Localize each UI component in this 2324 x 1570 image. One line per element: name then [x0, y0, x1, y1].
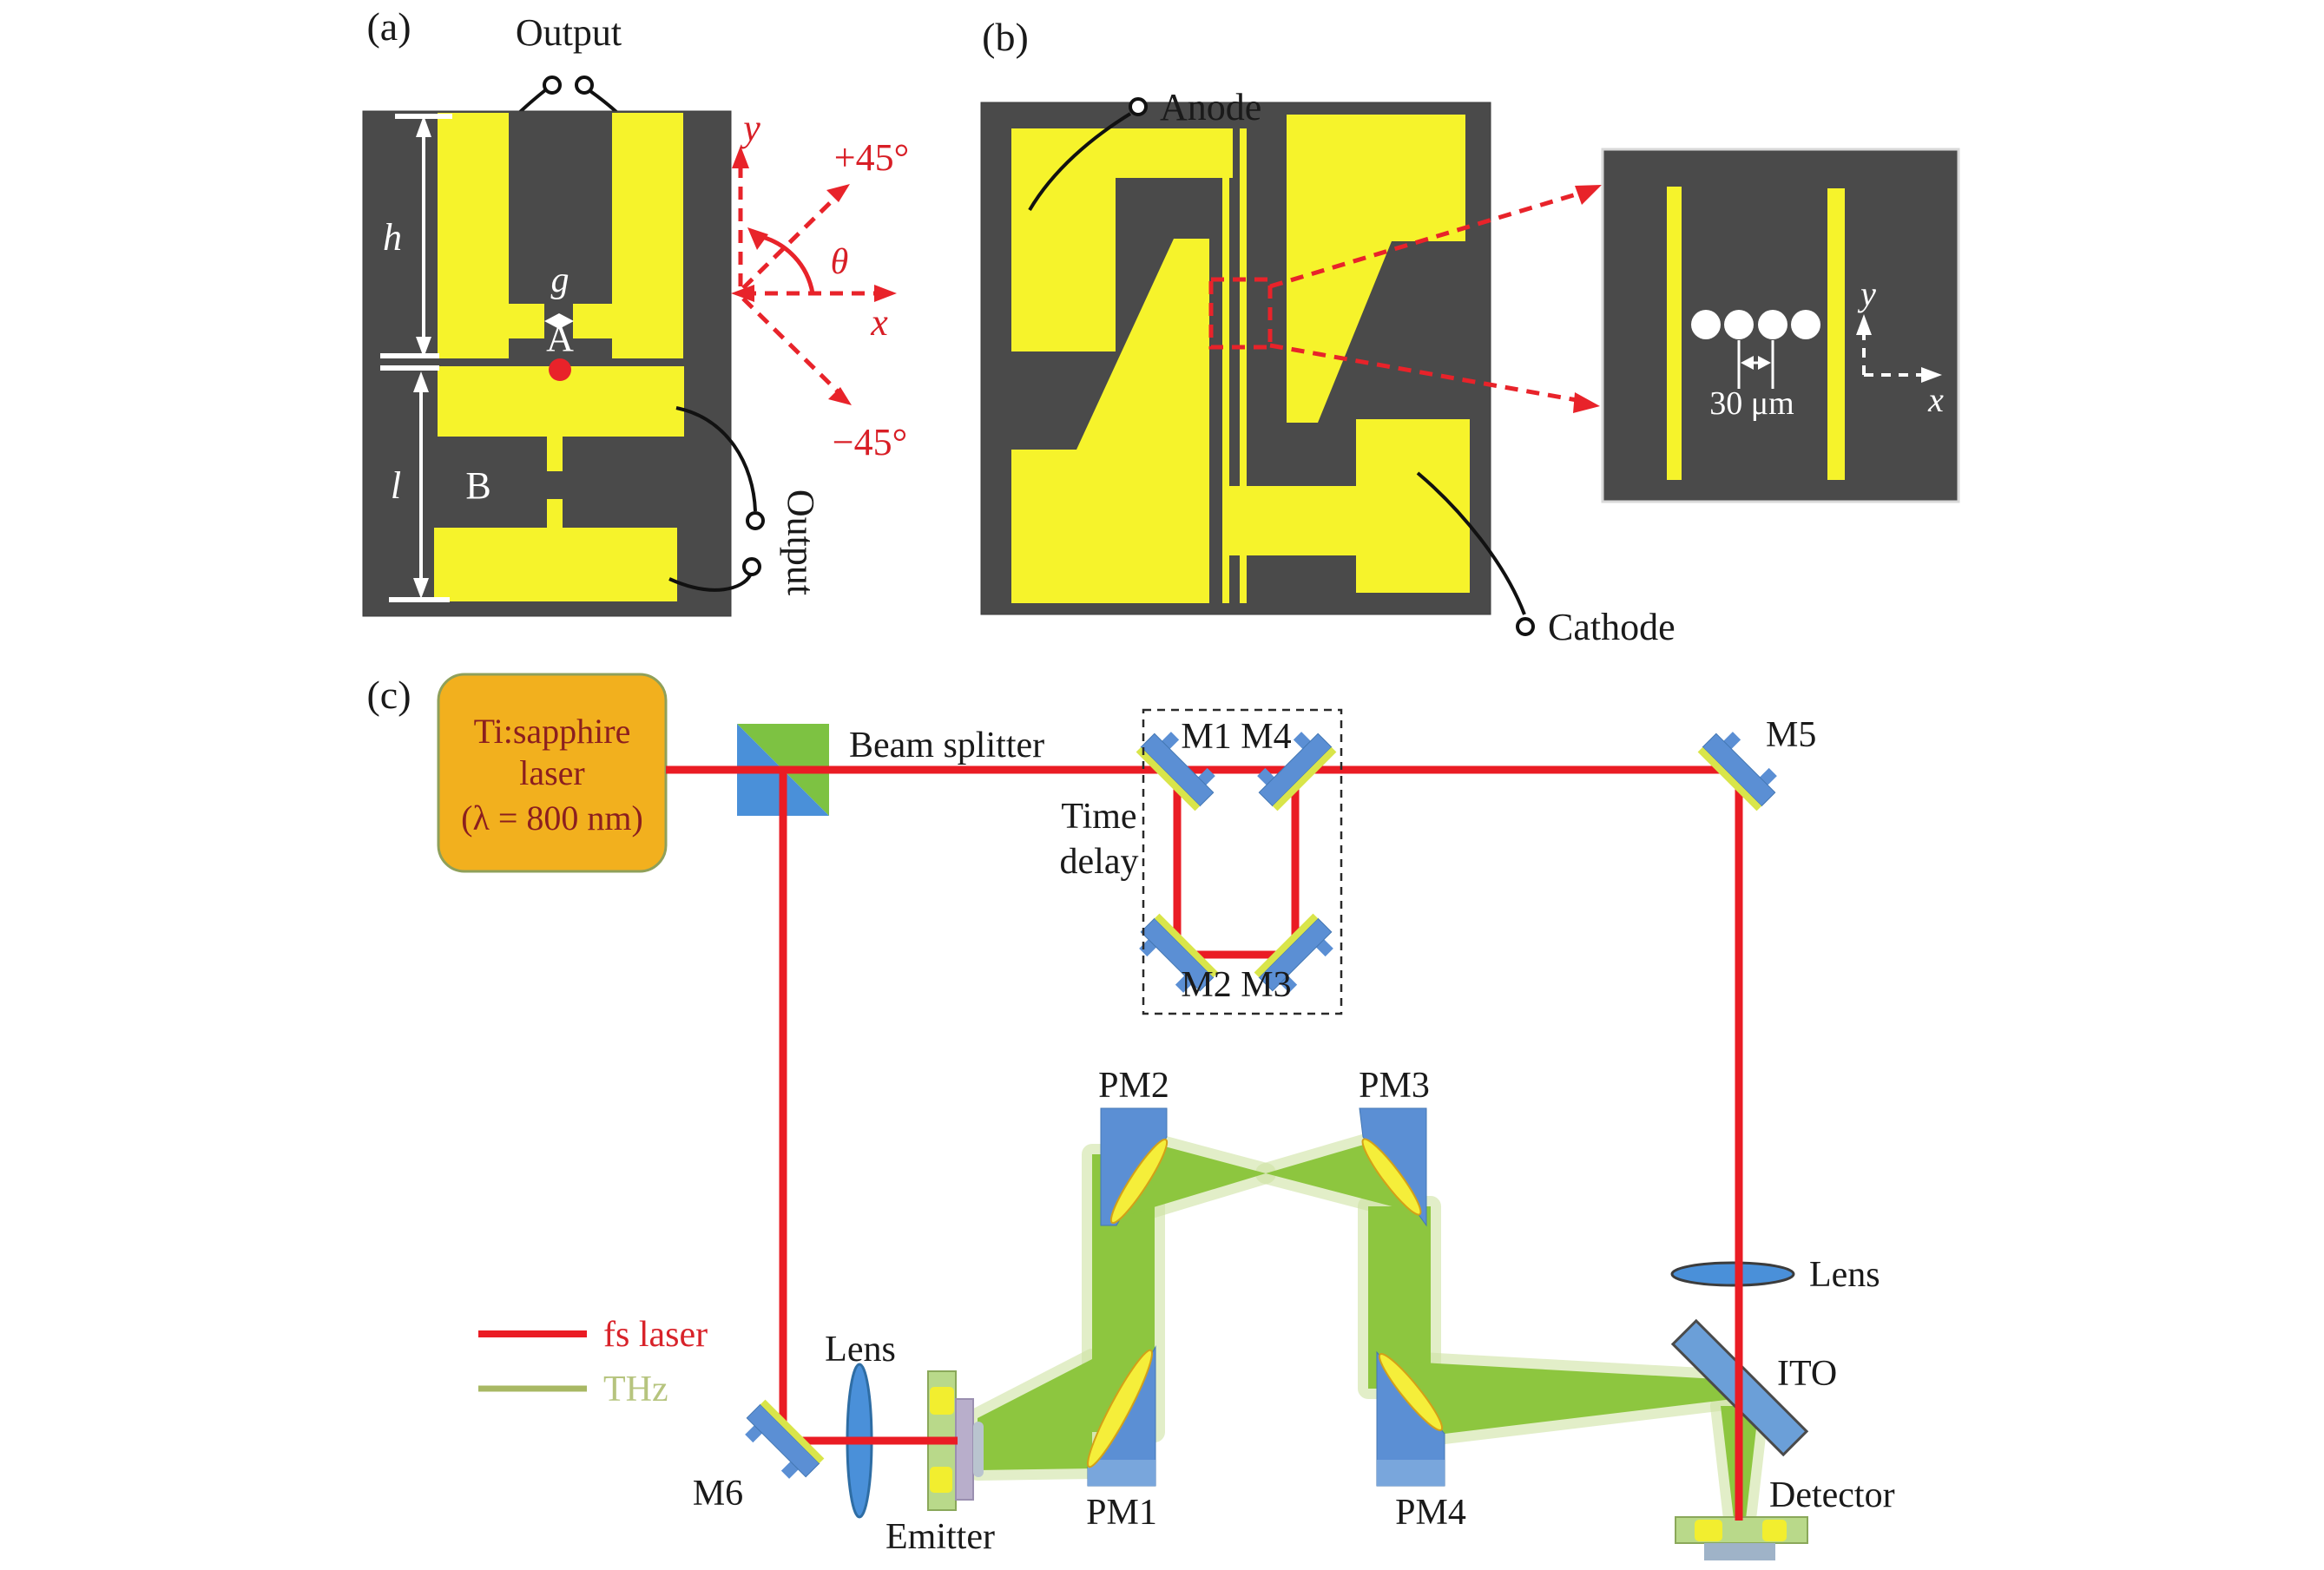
emitter-substrate-plate	[956, 1399, 973, 1500]
label-h: h	[383, 216, 402, 259]
inset-electrode-right	[1827, 188, 1845, 480]
polar-axes: y x +45° −45° θ	[731, 107, 909, 463]
emitter-label: Emitter	[885, 1517, 995, 1557]
pm4-label: PM4	[1395, 1493, 1466, 1533]
anode-bottom-pad	[1011, 450, 1209, 603]
axis-minus45-label: −45°	[833, 421, 907, 463]
output-bottom-terminal-upper-icon	[747, 513, 763, 529]
cathode-bottom-bar	[1222, 486, 1356, 555]
detector-label: Detector	[1769, 1475, 1895, 1515]
antenna-a-stub-lower	[547, 499, 563, 529]
panel-b-tag: (b)	[982, 15, 1029, 59]
figure-canvas: (a) Output h	[0, 0, 2324, 1570]
axis-y-label: y	[740, 107, 760, 149]
antenna-a-bridge-left	[509, 304, 544, 338]
time-delay-label-line2: delay	[1060, 842, 1139, 882]
m2m3-label: M2 M3	[1181, 965, 1291, 1005]
legend: fs laser THz	[478, 1315, 708, 1409]
gap-tick-lower	[380, 365, 439, 371]
inset-dimension-label: 30 μm	[1709, 385, 1794, 422]
detector-contact-left	[1695, 1520, 1722, 1541]
axis-plus45-label: +45°	[834, 136, 909, 179]
figure-svg: (a) Output h	[0, 0, 2324, 1570]
cathode-top-pad	[1287, 115, 1465, 241]
panel-a-output-top-label: Output	[516, 11, 622, 54]
anode-terminal-icon	[1130, 99, 1146, 115]
pm3-label: PM3	[1359, 1066, 1430, 1106]
panel-a-tag: (a)	[366, 4, 411, 49]
excitation-spot	[549, 358, 571, 381]
axis-theta-label: θ	[831, 242, 849, 282]
cathode-terminal-icon	[1518, 619, 1533, 634]
thz-emitter-cone	[978, 1359, 1092, 1470]
antenna-a-right-arm	[612, 113, 683, 358]
inset-electrode-left	[1667, 187, 1682, 480]
panel-b-inset: 30 μm y x	[1603, 149, 1959, 502]
panel-a-output-bottom-label: Output	[780, 489, 822, 595]
anode-label: Anode	[1160, 86, 1261, 128]
axis-x-label: x	[870, 301, 888, 344]
beam-splitter-label: Beam splitter	[849, 726, 1044, 765]
laser-source: Ti:sapphire laser (λ = 800 nm)	[438, 674, 666, 871]
time-delay-label-line1: Time	[1061, 797, 1136, 837]
emitter-contact-top	[930, 1387, 954, 1415]
output-bottom-terminal-lower-icon	[744, 559, 760, 575]
laser-label-line3: (λ = 800 nm)	[461, 798, 643, 838]
panel-a: (a) Output h	[363, 4, 909, 616]
cathode-label: Cathode	[1548, 606, 1676, 648]
m6-label: M6	[693, 1474, 743, 1514]
laser-label-line2: laser	[519, 753, 585, 792]
laser-label-line1: Ti:sapphire	[474, 712, 631, 751]
antenna-a-section-B	[434, 528, 677, 601]
gap-tick-upper	[380, 353, 439, 358]
inset-axis-y-label: y	[1857, 274, 1876, 313]
legend-fs-laser-label: fs laser	[603, 1315, 708, 1355]
antenna-a-stub-upper	[547, 437, 563, 471]
emitter-contact-bottom	[930, 1467, 952, 1493]
lens-detector-label: Lens	[1809, 1255, 1880, 1295]
label-g: g	[551, 260, 569, 300]
detector-mount	[1704, 1543, 1775, 1560]
m5-label: M5	[1766, 715, 1816, 755]
output-top-terminal-left-icon	[544, 77, 560, 93]
emitter-si-lens	[973, 1422, 984, 1477]
lens-detector-icon	[1672, 1263, 1794, 1285]
label-l: l	[391, 464, 401, 507]
pm2-label: PM2	[1098, 1066, 1169, 1106]
panel-c: (c)	[366, 673, 1894, 1560]
label-point-A: A	[546, 317, 574, 359]
antenna-a-bridge-right	[573, 304, 612, 338]
panel-c-tag: (c)	[366, 673, 411, 717]
ito-label: ITO	[1777, 1354, 1837, 1394]
detector-device	[1676, 1517, 1807, 1560]
lens-emitter-label: Lens	[825, 1330, 896, 1370]
m1m4-label: M1 M4	[1181, 717, 1291, 757]
legend-thz-label: THz	[603, 1370, 668, 1409]
output-top-terminal-right-icon	[576, 77, 592, 93]
detector-contact-right	[1762, 1520, 1787, 1541]
antenna-a-left-arm	[438, 113, 509, 358]
inset-axis-x-label: x	[1927, 380, 1944, 419]
panel-b: (b) Anode Cathode	[981, 15, 1959, 648]
label-point-B: B	[465, 464, 490, 507]
pm1-label: PM1	[1086, 1493, 1157, 1533]
